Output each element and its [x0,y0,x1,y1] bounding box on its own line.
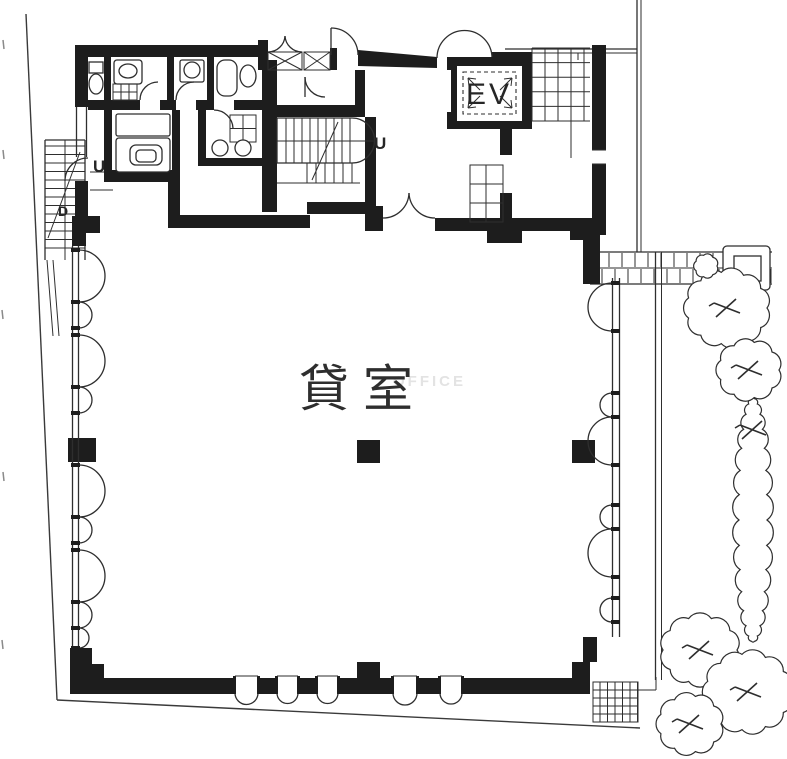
window-swing [588,283,612,331]
double-door-leaf [409,193,435,218]
landscaping [656,254,787,756]
window-swing [600,598,612,622]
tile-grid [113,84,137,100]
bottom-window-wall [70,648,590,705]
toilet-bowl [89,74,103,94]
hall-fixtures [470,165,503,222]
window-swing [79,302,92,328]
entry-tile-grid [532,48,590,158]
door-swing [176,82,194,100]
elevator-label: EV [466,78,512,111]
window-swing [79,335,105,387]
elevator-door-opening [444,70,451,112]
elevator: EV [444,48,590,158]
window-swing [79,628,89,648]
window-swing [79,250,105,302]
tile-grid [230,115,256,142]
terrace-edge [638,252,662,690]
right-window-wall [572,278,620,678]
wc-basin [235,140,251,156]
double-door-leaf [383,193,409,218]
wc-basin [212,140,228,156]
wash-basin [184,62,200,78]
window-swing [79,517,92,543]
column [572,440,595,463]
window-swing [600,393,612,417]
wc-room [212,110,256,156]
main-room: OFFICE 貸室 [68,361,595,680]
toilet-tank [89,62,103,73]
entrance-door-swing [437,30,492,58]
room-label: 貸室 [299,361,427,417]
floor-plan-page: U D [0,0,787,759]
double-door-leaf [268,36,285,52]
floor-plan-drawing: U D [0,0,787,759]
exterior-stair-up-label: U [93,157,105,176]
wall-column [357,662,380,680]
door-swing [140,82,158,100]
utility-room [116,114,170,172]
stair-up-label: U [374,134,386,153]
tree [694,254,718,278]
toilet-bowl [240,65,256,87]
paved-area-bottom-right [593,682,638,722]
tree [733,398,774,642]
window-swing [79,387,92,413]
column [357,440,380,463]
sink-basin [119,64,137,78]
window-swing [600,505,612,529]
window-swing [79,465,105,517]
double-door-leaf [285,36,302,52]
window-swing [588,529,612,577]
door-swing [305,77,325,97]
window-swing [79,602,92,628]
corridor [305,70,365,110]
urinal-stall [217,60,237,96]
window-swing [79,550,105,602]
